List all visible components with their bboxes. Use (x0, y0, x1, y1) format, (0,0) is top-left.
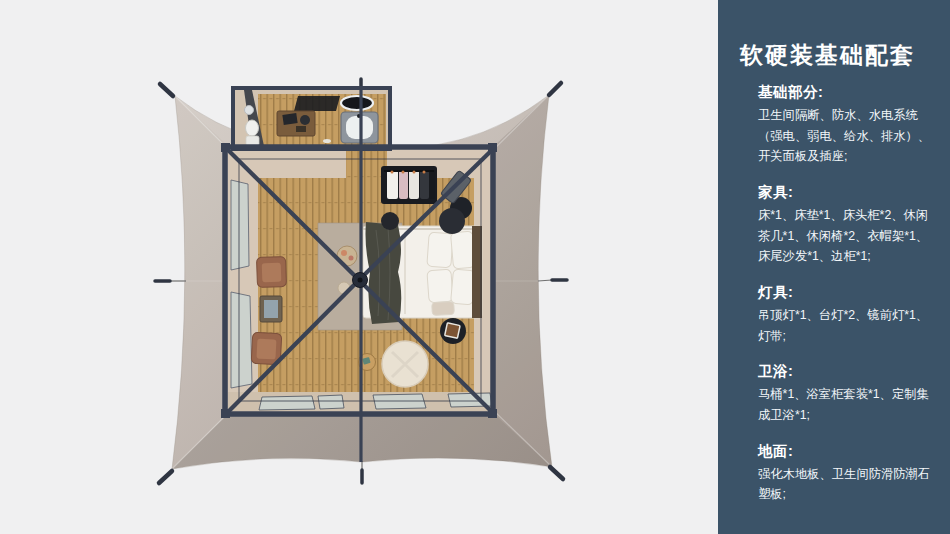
bed (363, 222, 482, 324)
shower-screen (294, 96, 340, 111)
tray-stool (440, 318, 466, 344)
entry-walkway-slats (346, 149, 387, 179)
bedside-table (381, 212, 399, 230)
section-lighting: 灯具: 吊顶灯*1、台灯*2、镜前灯*1、灯带; (758, 283, 934, 346)
stake-top-left (160, 84, 173, 96)
section-bathroom-heading: 卫浴: (758, 362, 934, 381)
armchair-top (256, 256, 286, 287)
section-basics-heading: 基础部分: (758, 83, 934, 102)
throw-blanket (366, 222, 402, 324)
pillows (427, 231, 476, 315)
section-bathroom: 卫浴: 马桶*1、浴室柜套装*1、定制集成卫浴*1; (758, 362, 934, 425)
towel-stand (245, 106, 254, 115)
section-basics-body: 卫生间隔断、防水、水电系统（强电、弱电、给水、排水）、开关面板及插座; (758, 105, 934, 167)
section-lighting-heading: 灯具: (758, 283, 934, 302)
toilet (246, 120, 260, 146)
section-flooring-body: 强化木地板、卫生间防滑防潮石塑板; (758, 464, 934, 505)
section-furniture-body: 床*1、床垫*1、床头柜*2、休闲茶几*1、休闲椅*2、衣帽架*1、床尾沙发*1… (758, 205, 934, 267)
stake-bottom-right (550, 467, 563, 479)
bath-mat (323, 139, 331, 143)
mirror-stand (260, 296, 282, 322)
section-flooring: 地面: 强化木地板、卫生间防滑防潮石塑板; (758, 442, 934, 505)
round-mirror (341, 96, 373, 110)
section-flooring-heading: 地面: (758, 442, 934, 461)
section-furniture-heading: 家具: (758, 183, 934, 202)
section-basics: 基础部分: 卫生间隔断、防水、水电系统（强电、弱电、给水、排水）、开关面板及插座… (758, 83, 934, 167)
tent-top-view-svg (0, 0, 718, 534)
section-lighting-body: 吊顶灯*1、台灯*2、镜前灯*1、灯带; (758, 305, 934, 346)
tent-render (0, 0, 718, 534)
panel-title: 软硬装基础配套 (740, 40, 938, 71)
clothes-rack (381, 166, 437, 204)
section-furniture: 家具: 床*1、床垫*1、床头柜*2、休闲茶几*1、休闲椅*2、衣帽架*1、床尾… (758, 183, 934, 267)
pouf (382, 341, 428, 387)
vanity-desk (277, 111, 315, 136)
center-hub-dot (358, 278, 363, 283)
section-bathroom-body: 马桶*1、浴室柜套装*1、定制集成卫浴*1; (758, 384, 934, 425)
info-panel: 软硬装基础配套 基础部分: 卫生间隔断、防水、水电系统（强电、弱电、给水、排水）… (718, 0, 950, 534)
bathroom (235, 87, 388, 147)
page: 软硬装基础配套 基础部分: 卫生间隔断、防水、水电系统（强电、弱电、给水、排水）… (0, 0, 950, 534)
panel-sections: 基础部分: 卫生间隔断、防水、水电系统（强电、弱电、给水、排水）、开关面板及插座… (758, 83, 934, 505)
stake-bottom-left (159, 471, 172, 483)
stake-top-right (549, 83, 561, 95)
